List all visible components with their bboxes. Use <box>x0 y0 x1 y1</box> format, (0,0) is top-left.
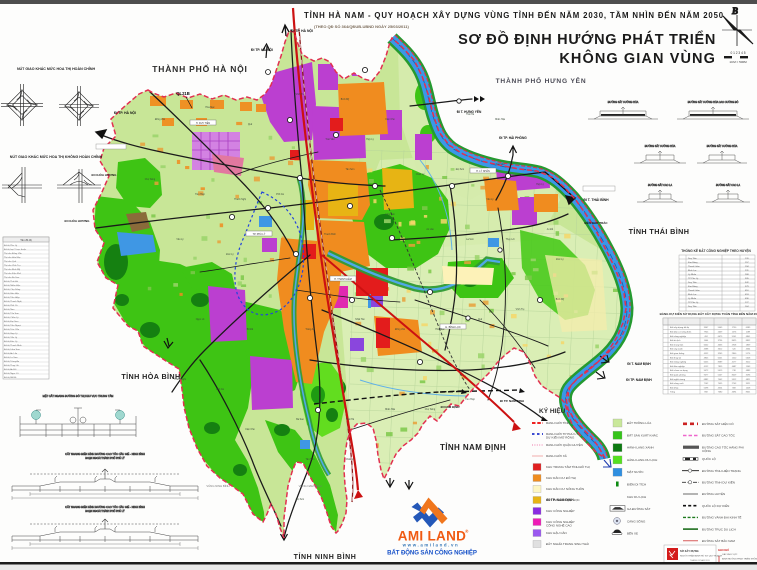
svg-text:Bình Mỹ: Bình Mỹ <box>341 98 350 101</box>
svg-text:KHU TRUNG TÂM TỈNH ĐÔ THỊ: KHU TRUNG TÂM TỈNH ĐÔ THỊ <box>546 464 590 469</box>
svg-text:Thanh Nghị: Thanh Nghị <box>234 199 246 201</box>
svg-text:1CM = 500M: 1CM = 500M <box>729 60 747 64</box>
svg-text:Tân Sơn: Tân Sơn <box>306 459 316 461</box>
svg-text:Hòa Mạc: Hòa Mạc <box>205 107 215 109</box>
svg-text:0 1 2 3 4 5: 0 1 2 3 4 5 <box>730 51 745 55</box>
svg-text:ĐI TP. HÀ NỘI: ĐI TP. HÀ NỘI <box>114 110 136 115</box>
svg-text:Chợ Sông: Chợ Sông <box>425 409 436 411</box>
svg-text:Tân Sơn: Tân Sơn <box>346 169 356 171</box>
svg-text:ĐI TP. NAM ĐỊNH: ĐI TP. NAM ĐỊNH <box>500 399 524 403</box>
svg-text:AMI LAND: AMI LAND <box>398 529 466 544</box>
svg-text:ĐẤT NGHĨA TRANG SINH THÁI: ĐẤT NGHĨA TRANG SINH THÁI <box>546 541 589 546</box>
svg-text:ĐƯỜNG SẮT CƯỜNG HÓA CAO CƯỜNG: ĐƯỜNG SẮT CƯỜNG HÓA CAO CƯỜNG ĐÔ <box>688 101 739 104</box>
svg-text:Lý Nhân: Lý Nhân <box>688 298 697 300</box>
svg-text:Thị trấn Ba Sao: Thị trấn Ba Sao <box>4 276 20 279</box>
svg-text:TỈNH HÀ NAM - QUY HOẠCH XÂY D: TỈNH HÀ NAM - QUY HOẠCH XÂY DỰNG VÙNG TỈ… <box>304 10 724 20</box>
svg-text:Hòa Mạc: Hòa Mạc <box>435 329 445 331</box>
svg-text:KÝ HIỆU: KÝ HIỆU <box>539 406 566 415</box>
svg-text:Thái Hà: Thái Hà <box>346 419 355 421</box>
svg-text:Đức Lý: Đức Lý <box>556 259 564 261</box>
svg-text:TỈNH THÁI BÌNH: TỈNH THÁI BÌNH <box>629 227 690 236</box>
svg-text:ĐƯỜNG HUYỆN: ĐƯỜNG HUYỆN <box>702 491 725 496</box>
svg-text:TỈNH NINH BÌNH: TỈNH NINH BÌNH <box>294 552 357 561</box>
svg-text:ĐI T. THÁI BÌNH: ĐI T. THÁI BÌNH <box>583 197 609 202</box>
svg-text:ĐƯỜNG SẮT CAO TỐC: ĐƯỜNG SẮT CAO TỐC <box>702 433 736 438</box>
svg-text:Vĩnh Trụ: Vĩnh Trụ <box>296 93 305 96</box>
svg-text:An Đổ: An Đổ <box>547 228 554 231</box>
svg-text:Văn Lý: Văn Lý <box>486 198 494 201</box>
svg-text:Đất chưa sử dụng: Đất chưa sử dụng <box>670 369 688 372</box>
svg-text:TP. PHỦ LÝ: TP. PHỦ LÝ <box>253 233 266 236</box>
svg-text:BẤT ĐỘNG SẢN CÔNG NGHIỆP: BẤT ĐỘNG SẢN CÔNG NGHIỆP <box>387 549 477 557</box>
svg-text:Đất sông suối: Đất sông suối <box>670 382 684 385</box>
svg-text:KHU DU LỊCH: KHU DU LỊCH <box>627 495 646 499</box>
svg-text:Liêm Sơn: Liêm Sơn <box>385 214 396 216</box>
svg-text:MẶT NƯỚC: MẶT NƯỚC <box>627 469 644 474</box>
svg-text:Kim Bảng: Kim Bảng <box>688 285 698 288</box>
svg-text:Thanh Liêm: Thanh Liêm <box>688 290 700 292</box>
svg-text:Đô thị Nhân Hậu: Đô thị Nhân Hậu <box>4 284 21 287</box>
svg-text:ĐI TP. HÀ NỘI: ĐI TP. HÀ NỘI <box>291 28 313 33</box>
svg-text:Đô thị Thanh Nghị: Đô thị Thanh Nghị <box>4 300 22 303</box>
svg-text:ĐỊNH HƯỚNG PHÁT TRIỂN KHÔNG GI: ĐỊNH HƯỚNG PHÁT TRIỂN KHÔNG GIAN <box>722 558 757 561</box>
svg-text:Tiên Hiệp: Tiên Hiệp <box>465 399 475 401</box>
svg-text:Đô thị Non: Đô thị Non <box>4 308 15 311</box>
svg-text:Đô thị Thụy Lôi: Đô thị Thụy Lôi <box>4 364 19 367</box>
svg-text:Kiện Khê: Kiện Khê <box>245 429 255 431</box>
svg-text:Thái Hà: Thái Hà <box>466 114 475 116</box>
svg-text:ĐƯỜNG SẮT CƯỜNG HÓA: ĐƯỜNG SẮT CƯỜNG HÓA <box>645 145 676 148</box>
svg-text:Đô thị Trác Văn: Đô thị Trác Văn <box>4 328 20 331</box>
svg-text:Đô thị Chợ Sông: Đô thị Chợ Sông <box>4 288 21 291</box>
svg-text:Đức Lý: Đức Lý <box>226 254 234 256</box>
svg-text:ĐI T. NAM ĐỊNH: ĐI T. NAM ĐỊNH <box>627 362 651 366</box>
svg-text:ĐẤT TRƯỜNG ĐẠI HỌC: ĐẤT TRƯỜNG ĐẠI HỌC <box>546 497 581 502</box>
svg-text:Tiên Hiệp: Tiên Hiệp <box>195 194 205 196</box>
svg-text:Đất cây xanh: Đất cây xanh <box>670 348 684 351</box>
svg-text:ĐƯỜNG TỈNH DỰ KIẾN: ĐƯỜNG TỈNH DỰ KIẾN <box>702 480 735 485</box>
svg-text:Thị trấn Bình Mỹ: Thị trấn Bình Mỹ <box>4 268 21 271</box>
svg-text:Thanh Nghị: Thanh Nghị <box>174 379 186 381</box>
svg-text:Đô thị loại V trực thuộc: Đô thị loại V trực thuộc <box>4 248 27 251</box>
svg-text:Đất nghĩa trang: Đất nghĩa trang <box>670 378 686 381</box>
svg-text:ĐƯỜNG TỈNH HIỆN TRẠNG: ĐƯỜNG TỈNH HIỆN TRẠNG <box>702 468 742 473</box>
svg-text:ĐI NAM ĐỊNH: ĐI NAM ĐỊNH <box>441 405 460 409</box>
svg-text:Đất du lịch: Đất du lịch <box>670 339 681 342</box>
svg-text:THÁNG 03 NĂM 2011: THÁNG 03 NĂM 2011 <box>690 559 711 562</box>
svg-text:Đô thị Hợp Lý: Đô thị Hợp Lý <box>4 332 18 335</box>
svg-text:Đô thị An Đổ: Đô thị An Đổ <box>4 368 17 371</box>
svg-text:ĐẤT TRỒNG LÚA: ĐẤT TRỒNG LÚA <box>627 420 651 425</box>
svg-text:CÁC KHU VỰC: CÁC KHU VỰC <box>722 553 738 556</box>
svg-text:KHÔNG GIAN VÙNG: KHÔNG GIAN VÙNG <box>559 49 716 67</box>
svg-text:RANH GIỚI QUẬN HUYỆN: RANH GIỚI QUẬN HUYỆN <box>546 442 583 447</box>
svg-text:Kim Bảng: Kim Bảng <box>688 261 698 264</box>
svg-text:THÀNH PHỐ HÀ NỘI: THÀNH PHỐ HÀ NỘI <box>152 63 247 74</box>
svg-text:ĐƯỜNG SẮT CAO LA: ĐƯỜNG SẮT CAO LA <box>648 184 673 187</box>
svg-text:Thụy Lôi: Thụy Lôi <box>506 239 515 241</box>
svg-text:ĐI TP. HẢI PHÒNG: ĐI TP. HẢI PHÒNG <box>499 135 527 140</box>
svg-text:Đất lâm nghiệp: Đất lâm nghiệp <box>670 365 685 368</box>
svg-text:ĐIỂM DI TÍCH: ĐIỂM DI TÍCH <box>627 482 646 487</box>
svg-text:ĐOẠN NGOÀI THÀNH PHỐ PHỦ LÝ: ĐOẠN NGOÀI THÀNH PHỐ PHỦ LÝ <box>85 457 125 460</box>
svg-text:TỈNH NAM ĐỊNH: TỈNH NAM ĐỊNH <box>440 443 506 452</box>
svg-text:GA ĐƯỜNG SẮT: GA ĐƯỜNG SẮT <box>627 506 651 511</box>
svg-text:BẢNG DỰ KIẾN SỬ DỤNG ĐẤT XÂY D: BẢNG DỰ KIẾN SỬ DỤNG ĐẤT XÂY DỰNG TOÀN T… <box>660 311 757 316</box>
svg-text:www.amiland.vn: www.amiland.vn <box>402 543 460 548</box>
svg-text:Thị trấn Vĩnh Trụ: Thị trấn Vĩnh Trụ <box>4 264 21 267</box>
svg-text:Đất thủy lợi: Đất thủy lợi <box>670 356 682 359</box>
svg-text:BẾN XE: BẾN XE <box>627 531 638 536</box>
svg-text:Hợp Lý: Hợp Lý <box>536 184 544 186</box>
svg-text:Đồng Văn: Đồng Văn <box>395 328 406 331</box>
svg-text:Chân Lý: Chân Lý <box>346 459 355 461</box>
svg-text:(THEO QĐ SỐ 364/QĐUB-UBND NGÀY: (THEO QĐ SỐ 364/QĐUB-UBND NGÀY 25/03/201… <box>314 24 410 29</box>
svg-text:Trác Văn: Trác Văn <box>325 138 335 141</box>
svg-text:Nhật Tân: Nhật Tân <box>355 318 365 321</box>
svg-text:Đất nông nghiệp: Đất nông nghiệp <box>670 361 687 364</box>
svg-text:Chân Lý: Chân Lý <box>416 174 425 176</box>
svg-text:ĐƯỜNG SẮT HIỆN CÓ: ĐƯỜNG SẮT HIỆN CÓ <box>702 421 734 426</box>
svg-text:ĐI CHÙA HƯƠNG: ĐI CHÙA HƯƠNG <box>65 218 91 223</box>
svg-text:BẾN NHƯ TRÁC: BẾN NHƯ TRÁC <box>584 220 608 225</box>
svg-text:ĐƯỜNG SẮT CƯỜNG HÓA: ĐƯỜNG SẮT CƯỜNG HÓA <box>707 145 738 148</box>
svg-text:Thị trấn Quế: Thị trấn Quế <box>4 260 17 263</box>
svg-text:Văn Lý: Văn Lý <box>176 238 184 241</box>
svg-text:Thanh Bình: Thanh Bình <box>324 234 337 236</box>
svg-text:Đô thị Đức Lý: Đô thị Đức Lý <box>4 340 18 343</box>
svg-text:Kiện Khê: Kiện Khê <box>385 119 395 121</box>
svg-text:ĐƯỜNG SẮT CƯỜNG HÓA: ĐƯỜNG SẮT CƯỜNG HÓA <box>608 101 639 104</box>
svg-text:VÙNG NINH BÌNH: VÙNG NINH BÌNH <box>206 483 229 488</box>
svg-text:H. THANH LIÊM: H. THANH LIÊM <box>334 278 352 281</box>
svg-text:Tên đô thị: Tên đô thị <box>20 238 32 242</box>
svg-text:QUỐC LỘ: QUỐC LỘ <box>702 456 717 461</box>
svg-text:TP Phủ Lý: TP Phủ Lý <box>688 277 699 280</box>
svg-text:ĐƯỜNG TRỤC DU LỊCH: ĐƯỜNG TRỤC DU LỊCH <box>702 526 736 531</box>
svg-text:Đô thị Tiên Ngoại: Đô thị Tiên Ngoại <box>4 324 21 327</box>
svg-text:Quế: Quế <box>248 123 253 126</box>
svg-text:RANH GIỚI XÃ: RANH GIỚI XÃ <box>546 453 567 458</box>
svg-text:Đồng Văn: Đồng Văn <box>155 118 166 121</box>
svg-text:Đô thị Chân Lý: Đô thị Chân Lý <box>4 316 19 319</box>
svg-text:Bình Mỹ: Bình Mỹ <box>556 298 565 301</box>
svg-text:DỰ KIẾN MỞ RỘNG: DỰ KIẾN MỞ RỘNG <box>546 435 575 440</box>
svg-text:ĐẤT SẢN XUẤT KHÁC: ĐẤT SẢN XUẤT KHÁC <box>627 432 659 437</box>
svg-text:Đô thị Đọi Sơn: Đô thị Đọi Sơn <box>4 320 19 323</box>
svg-text:HÀNH LANG DU LỊCH: HÀNH LANG DU LỊCH <box>627 458 657 462</box>
svg-text:Quế: Quế <box>478 318 483 321</box>
svg-text:CÔNG NGHỆ CAO: CÔNG NGHỆ CAO <box>546 523 573 528</box>
svg-text:TP Phủ Lý: TP Phủ Lý <box>688 301 699 304</box>
svg-text:Đô thị Thanh Bình: Đô thị Thanh Bình <box>4 344 22 347</box>
svg-text:Đô thị Phố Cà: Đô thị Phố Cà <box>4 304 18 307</box>
svg-text:SƠ ĐỒ ĐỊNH HƯỚNG PHÁT TRIỂN: SƠ ĐỒ ĐỊNH HƯỚNG PHÁT TRIỂN <box>458 30 716 48</box>
svg-text:Đất công nghiệp: Đất công nghiệp <box>670 335 687 338</box>
svg-text:Đô thị Bồ Đề: Đô thị Bồ Đề <box>4 376 17 379</box>
svg-text:Duy Tiên: Duy Tiên <box>688 306 697 308</box>
svg-text:Vĩnh Trụ: Vĩnh Trụ <box>516 308 525 311</box>
svg-text:TỈNH HÒA BÌNH: TỈNH HÒA BÌNH <box>121 372 180 381</box>
svg-text:Ba Sao: Ba Sao <box>296 419 304 421</box>
svg-text:Đô thị Tiên Hiệp: Đô thị Tiên Hiệp <box>4 296 20 299</box>
svg-text:Tổng: Tổng <box>670 391 676 394</box>
svg-text:Đất quốc phòng: Đất quốc phòng <box>670 374 686 377</box>
svg-text:Đất khác: Đất khác <box>670 386 680 389</box>
svg-text:ĐƯỜNG SẮT BẮC NAM: ĐƯỜNG SẮT BẮC NAM <box>702 538 735 543</box>
svg-text:CẢNG SÔNG: CẢNG SÔNG <box>627 518 646 523</box>
svg-text:Đô thị La Sơn: Đô thị La Sơn <box>4 356 18 359</box>
svg-text:Bình Lục: Bình Lục <box>688 294 698 296</box>
svg-text:Nhân Hậu: Nhân Hậu <box>495 119 506 121</box>
svg-text:Thị trấn Hòa Mạc: Thị trấn Hòa Mạc <box>4 256 22 259</box>
svg-text:H. LÝ NHÂN: H. LÝ NHÂN <box>476 170 490 173</box>
svg-text:Đất giao thông: Đất giao thông <box>670 352 685 355</box>
svg-text:Bình Lục: Bình Lục <box>688 270 698 272</box>
svg-text:Ngọc Lũ: Ngọc Lũ <box>196 318 205 321</box>
svg-text:Trác Văn: Trác Văn <box>495 163 505 166</box>
svg-text:Thị trấn Đồng Văn: Thị trấn Đồng Văn <box>4 252 23 255</box>
svg-text:NÚT GIAO KHÁC MỨC HOA THỊ KHÔN: NÚT GIAO KHÁC MỨC HOA THỊ KHÔNG HOÀN CHỈ… <box>10 154 103 159</box>
svg-text:Phố Cà: Phố Cà <box>276 193 284 196</box>
svg-text:Đô thị Thái Hà: Đô thị Thái Hà <box>4 280 19 283</box>
svg-text:Tràng An: Tràng An <box>305 328 315 331</box>
svg-text:Đô thị Hòa Hậu: Đô thị Hòa Hậu <box>4 292 20 295</box>
svg-text:La Sơn: La Sơn <box>466 239 474 241</box>
svg-text:Thị trấn Kiện Khê: Thị trấn Kiện Khê <box>4 272 22 275</box>
svg-text:Đất xây dựng đô thị: Đất xây dựng đô thị <box>670 326 690 329</box>
svg-text:Đô thị Tràng An: Đô thị Tràng An <box>4 360 20 363</box>
svg-text:KHU DÂN CƯ ĐÔ THỊ: KHU DÂN CƯ ĐÔ THỊ <box>546 475 576 480</box>
svg-text:An Lão: An Lão <box>426 228 434 231</box>
svg-text:Đất trung tâm: Đất trung tâm <box>670 343 683 346</box>
svg-text:ĐI TP. NAM ĐỊNH: ĐI TP. NAM ĐỊNH <box>626 378 652 382</box>
svg-text:H. BÌNH LỤC: H. BÌNH LỤC <box>445 325 461 329</box>
svg-text:ĐI TP. HÀ NỘI: ĐI TP. HÀ NỘI <box>251 47 273 52</box>
svg-text:Đô thị Tân Sơn: Đô thị Tân Sơn <box>4 312 20 315</box>
svg-text:RANH GIỚI TỈNH: RANH GIỚI TỈNH <box>546 420 570 425</box>
svg-text:Đô thị Liêm Sơn: Đô thị Liêm Sơn <box>4 348 21 351</box>
svg-text:Đô thị Văn Lý: Đô thị Văn Lý <box>4 336 18 339</box>
svg-text:Đô thị Ngọc Lũ: Đô thị Ngọc Lũ <box>4 372 19 375</box>
svg-text:Ba Sao: Ba Sao <box>426 104 434 106</box>
svg-text:KHU HẬU CẦN: KHU HẬU CẦN <box>546 530 567 535</box>
svg-text:CỘNG: CỘNG <box>702 448 712 453</box>
svg-text:Hợp Lý: Hợp Lý <box>366 139 374 141</box>
svg-text:THỐNG KÊ ĐẤT CÔNG NGHIỆP THEO: THỐNG KÊ ĐẤT CÔNG NGHIỆP THEO HUYỆN <box>681 248 751 253</box>
svg-text:Đô thị An Lão: Đô thị An Lão <box>4 352 18 355</box>
svg-text:QL21B: QL21B <box>176 91 190 96</box>
svg-text:Đô thị Phủ Lý: Đô thị Phủ Lý <box>4 244 18 247</box>
svg-text:Thanh Liêm: Thanh Liêm <box>688 266 700 268</box>
svg-text:NGƯỜI THẨM ĐỊNH HỒ SƠ QUY HOẠC: NGƯỜI THẨM ĐỊNH HỒ SƠ QUY HOẠCH <box>680 555 722 558</box>
svg-text:Lý Nhân: Lý Nhân <box>688 274 697 276</box>
svg-text:Duy Tiên: Duy Tiên <box>688 282 697 284</box>
svg-text:ĐƯỜNG VÀNH ĐAI KINH TẾ: ĐƯỜNG VÀNH ĐAI KINH TẾ <box>702 515 741 520</box>
svg-text:KHU CÔNG NGHIỆP: KHU CÔNG NGHIỆP <box>546 508 575 513</box>
svg-text:VÙNG NAM ĐỊNH: VÙNG NAM ĐỊNH <box>299 483 322 488</box>
svg-text:HÀNH LANG XANH: HÀNH LANG XANH <box>627 446 654 450</box>
svg-text:Đọi Sơn: Đọi Sơn <box>456 169 465 171</box>
svg-text:Bồ Đề: Bồ Đề <box>247 328 254 331</box>
svg-text:ĐOẠN NGOÀI THÀNH PHỐ PHỦ LÝ: ĐOẠN NGOÀI THÀNH PHỐ PHỦ LÝ <box>85 510 125 513</box>
svg-text:KHU DÂN CƯ NÔNG THÔN: KHU DÂN CƯ NÔNG THÔN <box>546 486 584 491</box>
svg-text:ĐI CHÙA HƯƠNG: ĐI CHÙA HƯƠNG <box>92 172 118 177</box>
svg-text:Chợ Sông: Chợ Sông <box>145 179 156 181</box>
svg-text:Đất dân cư nông thôn: Đất dân cư nông thôn <box>670 331 692 334</box>
svg-text:Duy Tiên: Duy Tiên <box>688 258 697 260</box>
svg-text:ĐƯỜNG SẮT CAO LA: ĐƯỜNG SẮT CAO LA <box>716 184 741 187</box>
svg-text:B: B <box>731 6 738 16</box>
svg-text:QUỐC LỘ DỰ KIẾN: QUỐC LỘ DỰ KIẾN <box>702 503 729 508</box>
svg-text:Nhân Hậu: Nhân Hậu <box>385 409 396 411</box>
svg-text:Đọi Sơn: Đọi Sơn <box>296 499 305 501</box>
svg-text:H. DUY TIÊN: H. DUY TIÊN <box>196 122 210 125</box>
svg-text:NÚT GIAO KHÁC MỨC HOA THỊ HOÀN: NÚT GIAO KHÁC MỨC HOA THỊ HOÀN CHỈNH <box>17 66 96 71</box>
svg-text:Phố Cà: Phố Cà <box>216 388 224 391</box>
